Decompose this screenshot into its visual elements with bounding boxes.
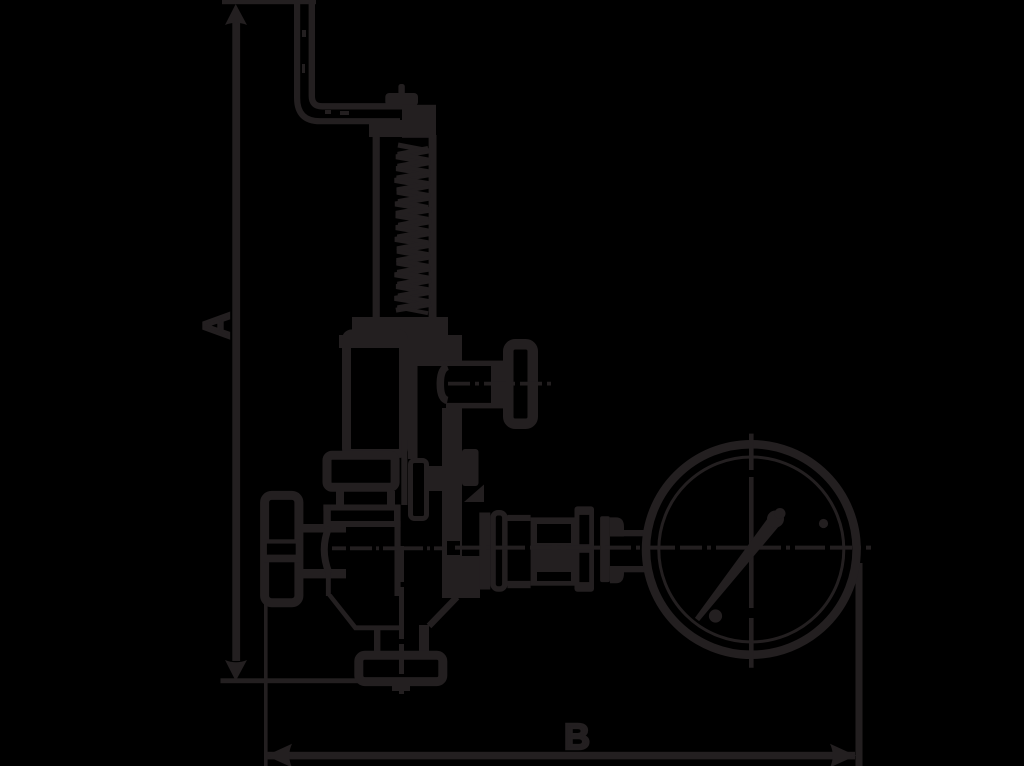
svg-text:A: A	[196, 312, 237, 339]
svg-text:B: B	[564, 716, 590, 757]
